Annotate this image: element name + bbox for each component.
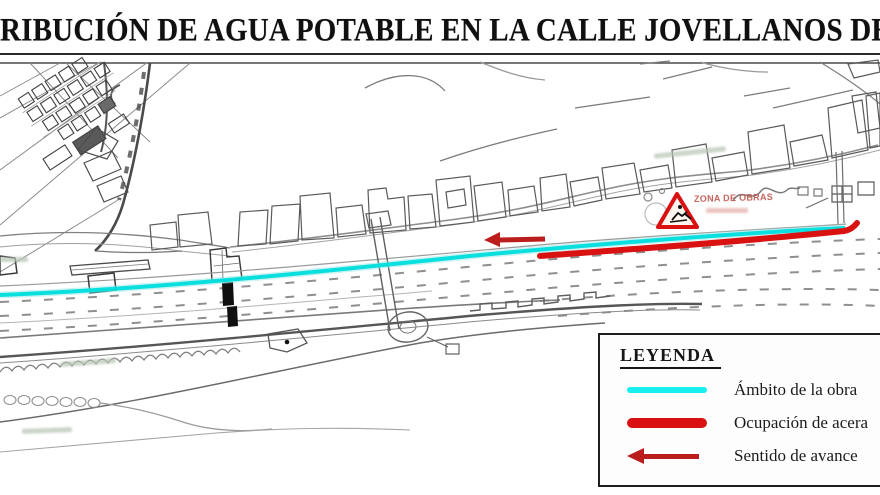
advance-arrow [484, 232, 545, 247]
legend-title: LEYENDA [620, 345, 721, 369]
legend-item-label: Ocupación de acera [734, 413, 868, 433]
works-sign-sublabel-smudge [706, 208, 748, 213]
legend-box: LEYENDA Ámbito de la obra Ocupación de a… [598, 333, 880, 487]
building-frontage [150, 60, 880, 281]
arrow-shaft [641, 454, 699, 459]
legend-item-label: Ámbito de la obra [734, 380, 857, 400]
works-warning-triangle-icon [658, 194, 697, 227]
site-plan-page: RIBUCIÓN DE AGUA POTABLE EN LA CALLE JOV… [0, 0, 880, 495]
cyan-line-swatch [627, 387, 707, 393]
red-arrow-swatch [627, 448, 707, 464]
footbridge [371, 217, 399, 331]
legend-item-label: Sentido de avance [734, 446, 858, 466]
context-contours [365, 61, 880, 161]
works-sign-label: ZONA DE OBRAS [694, 192, 773, 204]
old-town-district [0, 48, 230, 272]
legend-item-advance-direction: Sentido de avance [600, 444, 880, 468]
street-label-smudge [0, 257, 28, 262]
legend-item-work-extent: Ámbito de la obra [600, 378, 880, 402]
red-bar-swatch [627, 418, 707, 428]
legend-item-sidewalk-occupation: Ocupación de acera [600, 411, 880, 435]
crossing-marker [222, 282, 238, 327]
